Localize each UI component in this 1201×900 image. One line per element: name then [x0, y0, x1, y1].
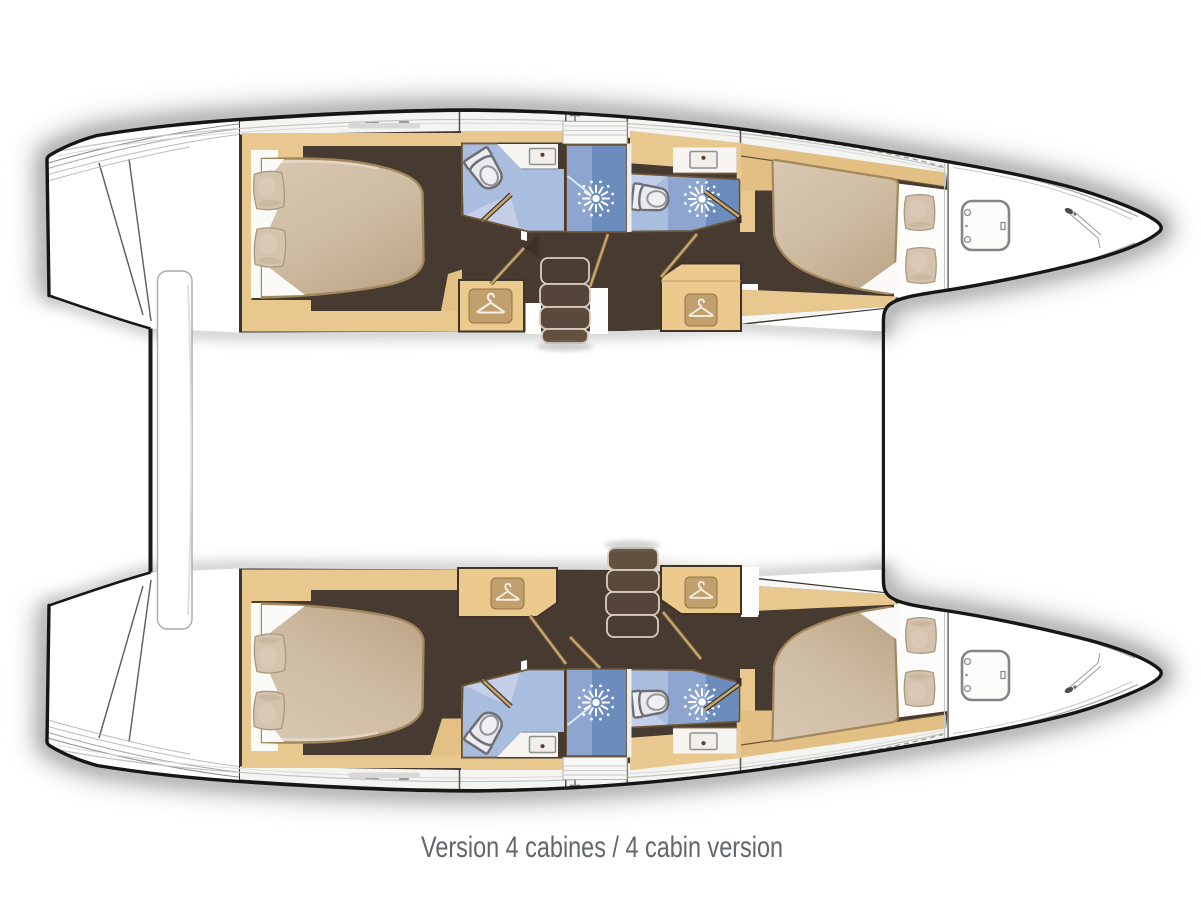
svg-text:Version 4 cabines / 4 cabin ve: Version 4 cabines / 4 cabin version: [421, 831, 783, 864]
